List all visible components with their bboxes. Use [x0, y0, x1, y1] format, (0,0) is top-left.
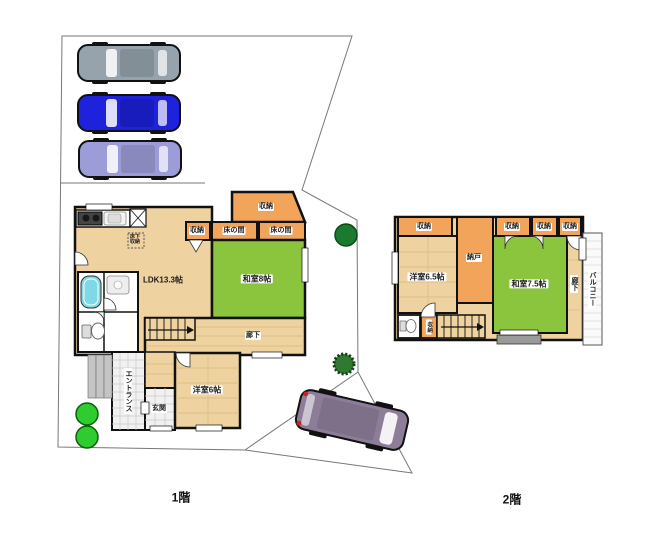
refrigerator-box [130, 209, 146, 227]
stairs-2f [437, 315, 485, 338]
bush-icon-1 [76, 403, 98, 425]
car-lavender [79, 138, 181, 180]
label-entrance: エントランス [124, 368, 132, 414]
front-door-1f [150, 426, 172, 431]
toilet-icon-1f [92, 323, 105, 339]
label-tokonoma-left: 床の間 [223, 227, 246, 235]
bush-icon-2 [76, 426, 98, 448]
label-storage-2f-b: 収納 [536, 223, 552, 231]
label-storage-top-1f: 収納 [258, 203, 274, 211]
tree-icon-round [335, 224, 357, 246]
floor1-caption: 1階 [172, 489, 191, 506]
label-storage-2f-small: 収納 [426, 320, 432, 335]
label-balcony: バルコニー [588, 270, 596, 309]
stairs-1f [145, 318, 195, 340]
exterior-steps [88, 355, 112, 398]
toilet-tank-1f [82, 325, 91, 338]
floor2-caption: 2階 [503, 491, 522, 508]
entrance-step-marker [141, 402, 149, 414]
car-gray [78, 42, 180, 84]
label-hallway-1f: 廊下 [245, 332, 261, 340]
floorplan-drawing [0, 0, 656, 539]
label-hallway-2f: 廊下 [570, 275, 578, 293]
label-genkan: 玄関 [151, 405, 167, 413]
label-underfloor-storage: 床下収納 [130, 235, 142, 246]
kitchen-counter [76, 210, 130, 227]
hall-to-genkan [145, 352, 175, 388]
label-storage-row-1f: 収納 [189, 227, 205, 235]
balcony-door-2f [579, 238, 586, 260]
label-tokonoma-right: 床の間 [270, 227, 293, 235]
bathroom-block [78, 272, 138, 352]
floorplan-canvas: 収納 収納 床の間 床の間 和室8帖 LDK13.3帖 床下収納 廊下 洋室6帖… [0, 0, 656, 539]
tree-icon-spiky [334, 354, 354, 374]
label-nando: 納戸 [466, 254, 482, 262]
label-storage-2f-c: 収納 [562, 223, 578, 231]
label-yoshitsu-1f: 洋室6帖 [191, 385, 223, 394]
label-ldk: LDK13.3帖 [141, 275, 185, 284]
toilet-tank-2f [400, 321, 406, 331]
label-storage-2f-a: 収納 [504, 223, 520, 231]
label-yoshitsu-2f: 洋室6.5帖 [407, 272, 446, 281]
toilet-icon-2f [406, 320, 416, 333]
label-washitsu-1f: 和室8帖 [241, 274, 273, 283]
van-purple [293, 384, 411, 456]
car-blue [78, 92, 180, 134]
label-washitsu-2f: 和室7.5帖 [509, 279, 548, 288]
window-ledge-2f [497, 335, 541, 344]
label-storage-2f-left: 収納 [416, 223, 432, 231]
